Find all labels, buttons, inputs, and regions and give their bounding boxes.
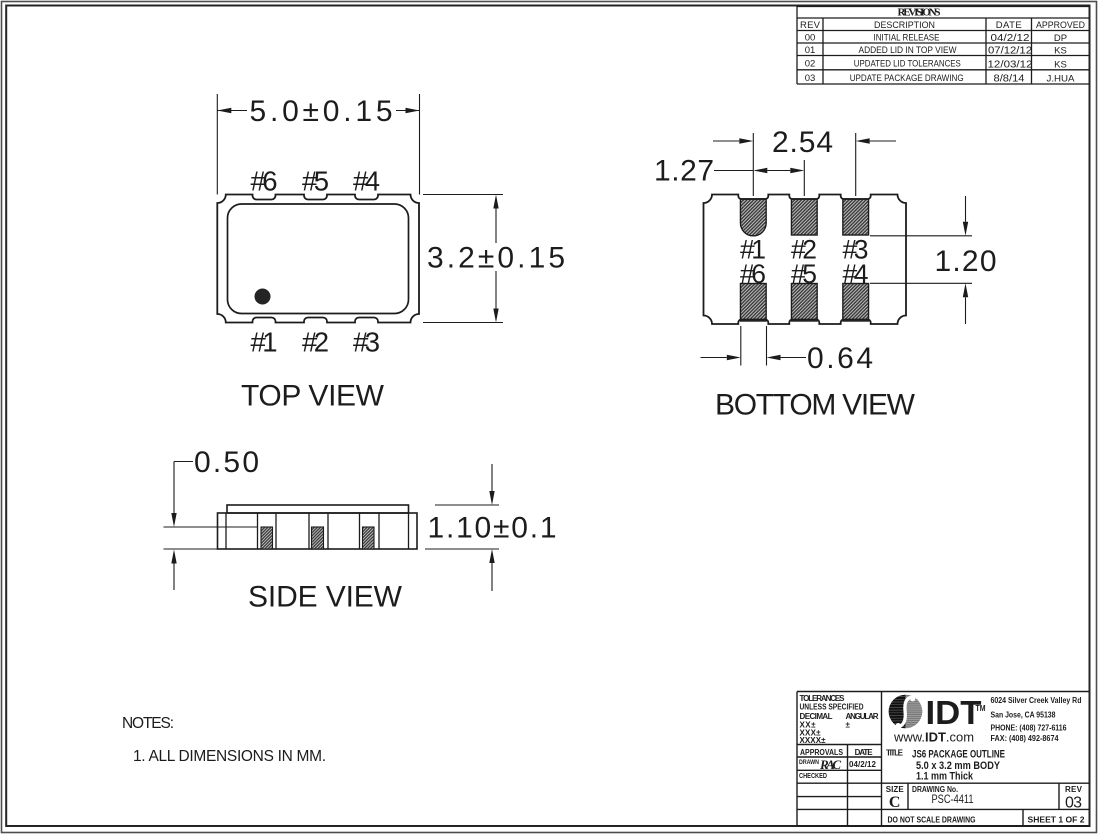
- svg-text:SHEET 1 OF 2: SHEET 1 OF 2: [1028, 815, 1085, 825]
- svg-text:DATE: DATE: [996, 20, 1022, 31]
- svg-text:1. ALL DIMENSIONS IN MM.: 1. ALL DIMENSIONS IN MM.: [133, 748, 326, 765]
- svg-text:APPROVED: APPROVED: [1036, 20, 1085, 31]
- svg-text:1.20: 1.20: [935, 245, 997, 278]
- svg-text:IDT: IDT: [926, 694, 982, 731]
- svg-text:KS: KS: [1054, 59, 1067, 70]
- svg-text:04/2/12: 04/2/12: [991, 32, 1030, 44]
- svg-text:XXXX±: XXXX±: [800, 736, 827, 745]
- svg-text:07/12/12: 07/12/12: [988, 45, 1032, 57]
- svg-text:REV: REV: [1065, 785, 1083, 794]
- svg-text:FAX: (408) 492-8674: FAX: (408) 492-8674: [991, 734, 1059, 743]
- svg-text:#1: #1: [251, 327, 278, 358]
- svg-text:04/2/12: 04/2/12: [849, 760, 877, 769]
- svg-text:J.HUA: J.HUA: [1047, 74, 1076, 85]
- svg-text:8/8/14: 8/8/14: [994, 73, 1025, 85]
- svg-text:#6: #6: [251, 166, 278, 197]
- svg-text:DO NOT SCALE DRAWING: DO NOT SCALE DRAWING: [888, 815, 976, 825]
- svg-text:DP: DP: [1054, 33, 1067, 44]
- svg-text:UPDATE PACKAGE DRAWING: UPDATE PACKAGE DRAWING: [850, 73, 964, 84]
- svg-text:APPROVALS: APPROVALS: [800, 748, 844, 757]
- svg-text:#5: #5: [302, 166, 329, 197]
- svg-text:REV: REV: [800, 20, 821, 31]
- svg-text:00: 00: [805, 32, 816, 43]
- svg-text:03: 03: [805, 73, 816, 84]
- svg-text:San Jose, CA 95138: San Jose, CA 95138: [991, 711, 1056, 720]
- svg-text:ANGULAR: ANGULAR: [846, 712, 879, 721]
- svg-text:C: C: [889, 794, 901, 811]
- svg-text:DESCRIPTION: DESCRIPTION: [874, 20, 935, 31]
- svg-text:PSC-4411: PSC-4411: [932, 794, 974, 806]
- svg-text:#6: #6: [740, 259, 766, 289]
- svg-text:JS6 PACKAGE OUTLINE: JS6 PACKAGE OUTLINE: [912, 749, 1005, 761]
- svg-text:12/03/12: 12/03/12: [988, 58, 1033, 70]
- svg-text:03: 03: [1065, 795, 1082, 812]
- svg-text:TM: TM: [976, 703, 986, 713]
- svg-text:REVISIONS: REVISIONS: [898, 7, 941, 19]
- svg-text:TITLE: TITLE: [886, 749, 904, 758]
- svg-text:SIDE VIEW: SIDE VIEW: [248, 581, 403, 614]
- svg-text:ADDED LID IN TOP VIEW: ADDED LID IN TOP VIEW: [859, 45, 957, 56]
- svg-text:1.27: 1.27: [654, 155, 714, 188]
- svg-text:CHECKED: CHECKED: [799, 773, 827, 780]
- svg-text:NOTES:: NOTES:: [122, 715, 174, 732]
- svg-text:PHONE: (408) 727-6116: PHONE: (408) 727-6116: [991, 724, 1067, 733]
- svg-text:2.54: 2.54: [772, 126, 833, 159]
- svg-text:#3: #3: [353, 327, 380, 358]
- svg-text:1.1 mm Thick: 1.1 mm Thick: [916, 771, 974, 783]
- svg-text:DRAWING No.: DRAWING No.: [912, 785, 958, 794]
- svg-text:TOP VIEW: TOP VIEW: [241, 380, 385, 413]
- svg-text:#5: #5: [791, 259, 817, 289]
- svg-text:1.10±0.1: 1.10±0.1: [428, 512, 557, 545]
- svg-text:INITIAL RELEASE: INITIAL RELEASE: [874, 32, 940, 43]
- svg-text:±: ±: [846, 721, 851, 730]
- svg-text:01: 01: [805, 45, 816, 56]
- svg-text:UNLESS SPECIFIED: UNLESS SPECIFIED: [800, 703, 864, 712]
- svg-text:6024 Silver Creek Valley Rd: 6024 Silver Creek Valley Rd: [991, 696, 1082, 705]
- svg-text:0.50: 0.50: [194, 446, 259, 479]
- svg-text:#4: #4: [353, 166, 380, 197]
- svg-text:DRAWN: DRAWN: [799, 759, 819, 766]
- svg-text:#2: #2: [302, 327, 329, 358]
- svg-text:0.64: 0.64: [807, 342, 873, 375]
- svg-text:RAC: RAC: [819, 757, 841, 772]
- svg-text:UPDATED LID TOLERANCES: UPDATED LID TOLERANCES: [854, 59, 961, 70]
- svg-text:#4: #4: [843, 259, 869, 289]
- svg-text:02: 02: [805, 59, 816, 70]
- svg-text:SIZE: SIZE: [886, 785, 905, 794]
- svg-text:KS: KS: [1054, 46, 1067, 57]
- svg-text:www.IDT.com: www.IDT.com: [893, 730, 974, 745]
- svg-text:BOTTOM VIEW: BOTTOM VIEW: [715, 389, 916, 422]
- svg-text:DATE: DATE: [855, 748, 874, 757]
